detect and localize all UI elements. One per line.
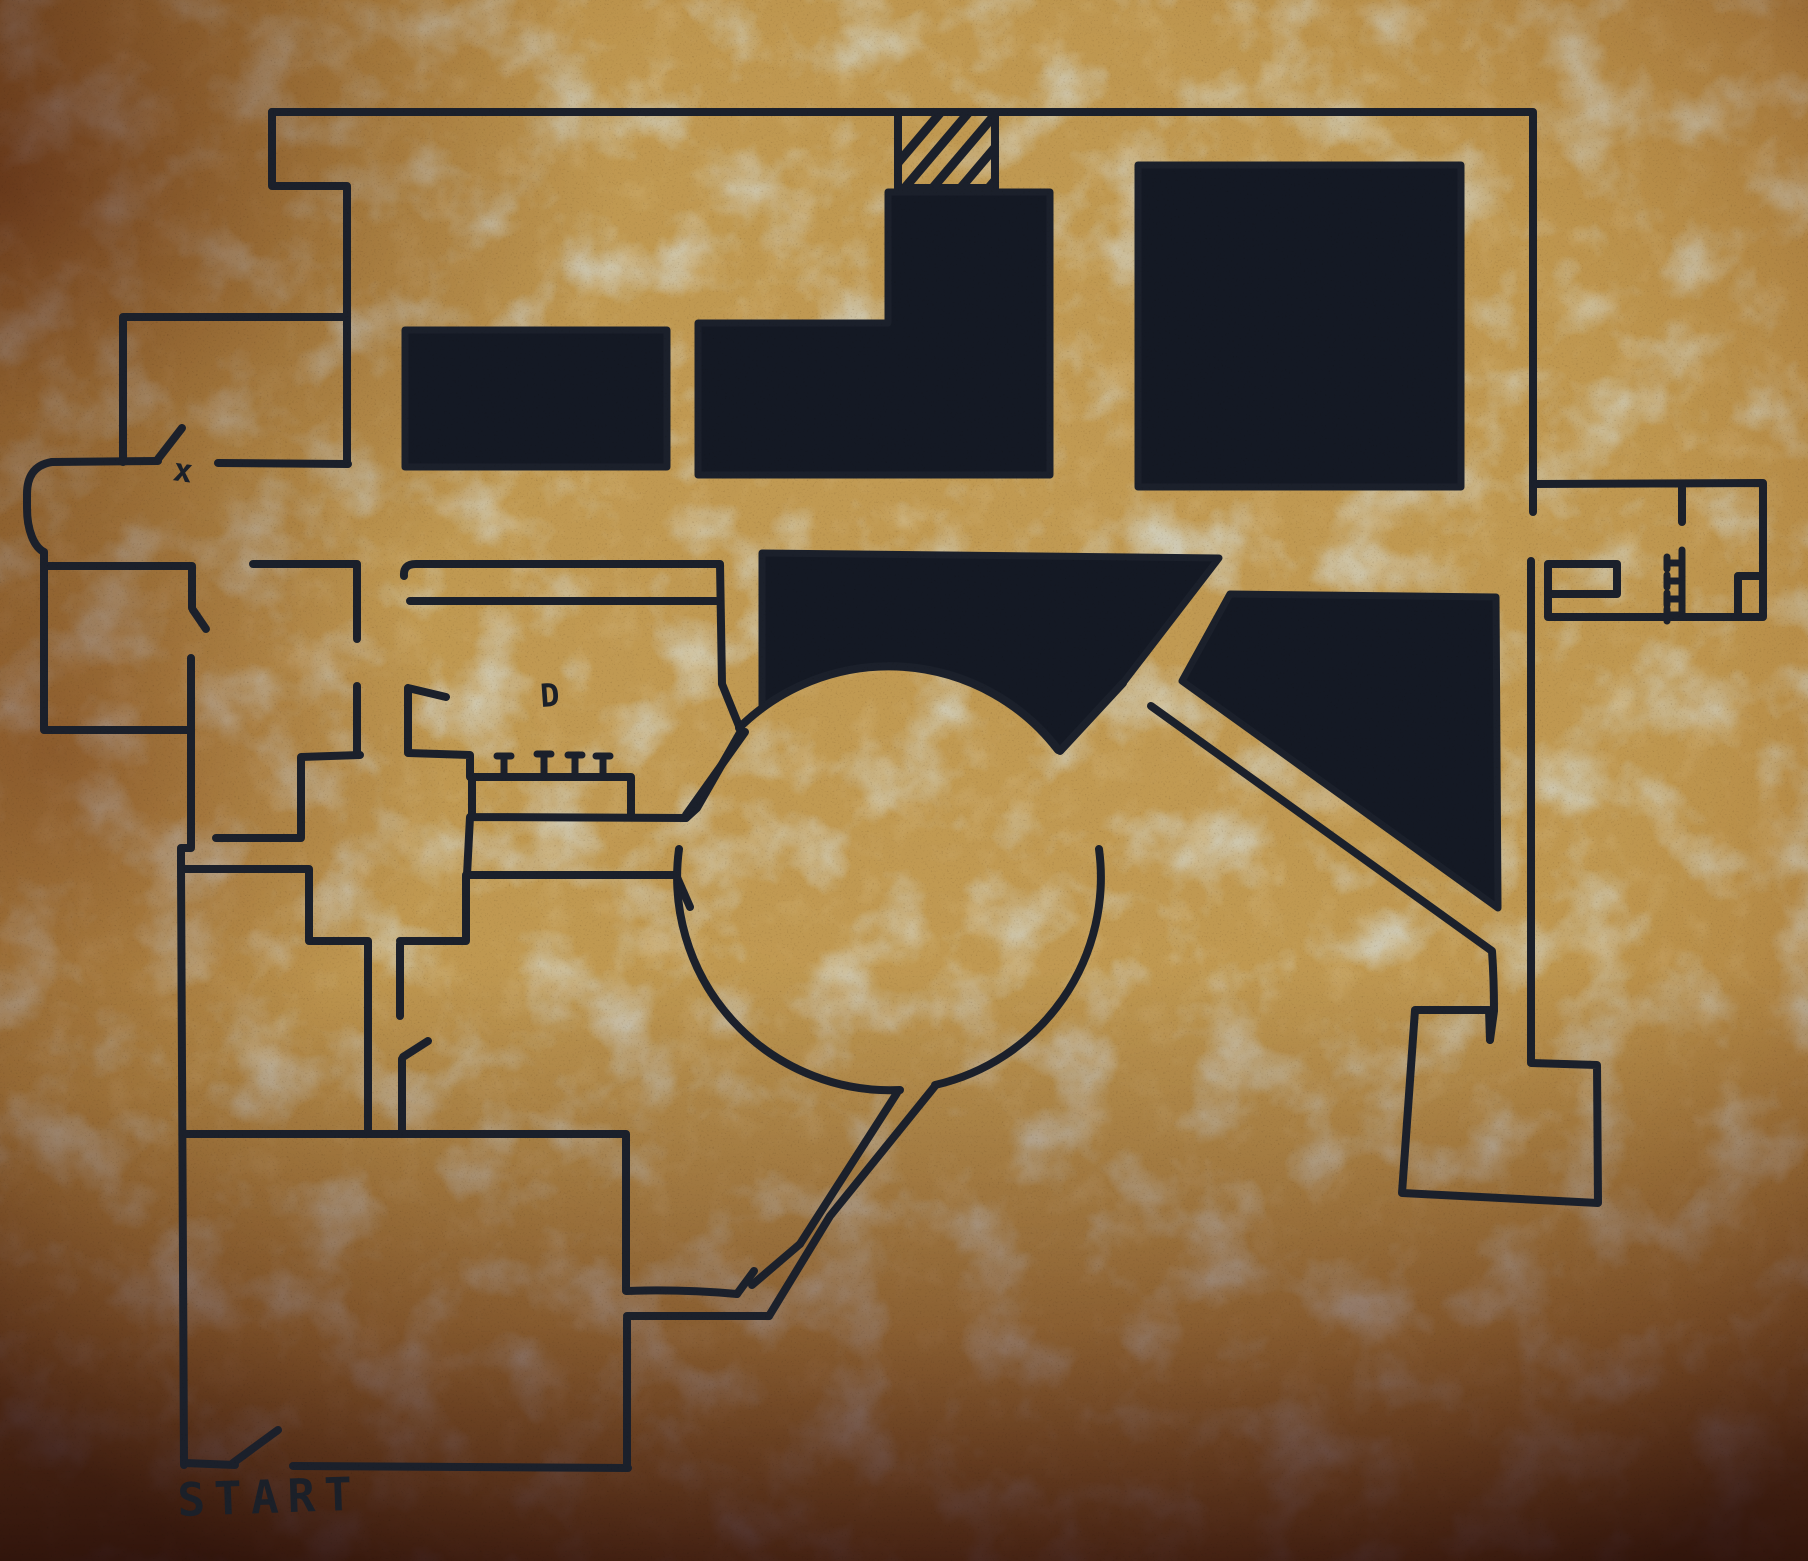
grain-overlay — [0, 0, 1808, 1561]
map-canvas: START x D — [0, 0, 1808, 1561]
parchment-map: START x D — [0, 0, 1808, 1561]
